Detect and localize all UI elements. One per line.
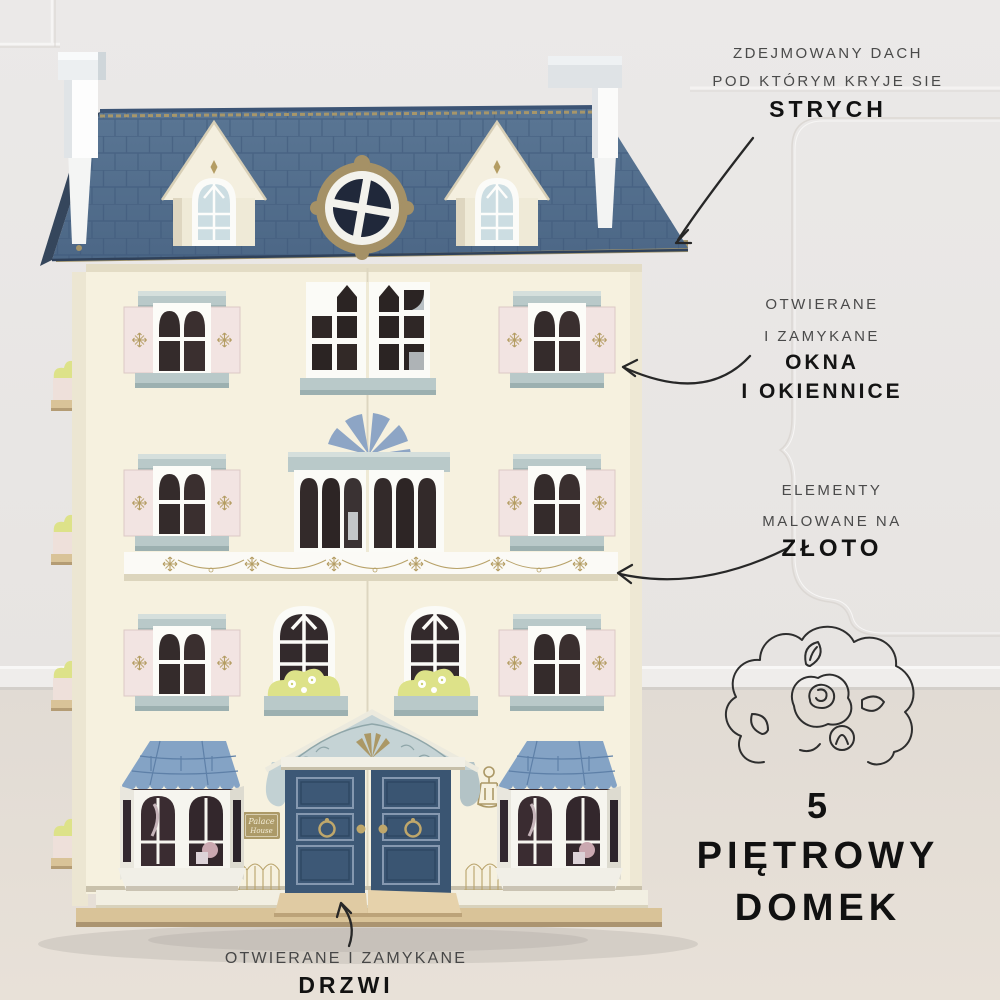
annotation-roof-emphasis: STRYCH: [688, 98, 968, 121]
shuttered-window: [499, 291, 615, 388]
annotation-windows-emphasis2: I OKIENNICE: [692, 381, 952, 402]
shuttered-window: [124, 454, 240, 551]
door-knob: [357, 825, 366, 834]
annotation-floors-line2: DOMEK: [678, 889, 958, 927]
annotation-windows: OTWIERANE I ZAMYKANE OKNA I OKIENNICE: [692, 297, 952, 402]
annotation-windows-line2: I ZAMYKANE: [692, 329, 952, 344]
gothic-window: [300, 282, 436, 395]
shuttered-window: [499, 614, 615, 711]
annotation-windows-emphasis1: OKNA: [692, 352, 952, 373]
annotation-floors-count: 5: [678, 788, 958, 824]
dollhouse: Palace House: [38, 52, 698, 964]
annotation-gold: ELEMENTY MALOWANE NA ZŁOTO: [702, 483, 962, 561]
annotation-gold-line2: MALOWANE NA: [702, 514, 962, 529]
plaque-text-line1: Palace: [247, 817, 275, 826]
shuttered-window: [124, 614, 240, 711]
door-knob: [379, 825, 388, 834]
annotation-door-emphasis: DRZWI: [216, 974, 476, 997]
annotation-door: OTWIERANE I ZAMYKANE DRZWI: [216, 951, 476, 997]
product-infographic: Palace House: [0, 0, 1000, 1000]
bay-window: [118, 741, 246, 891]
annotation-roof-line2: POD KTÓRYM KRYJE SIE: [688, 74, 968, 89]
annotation-roof-line1: ZDEJMOWANY DACH: [688, 46, 968, 61]
bay-window: [495, 741, 623, 891]
annotation-door-line1: OTWIERANE I ZAMYKANE: [216, 951, 476, 967]
gold-frieze: [124, 552, 618, 581]
shuttered-window: [124, 291, 240, 388]
annotation-windows-line1: OTWIERANE: [692, 297, 952, 312]
annotation-roof: ZDEJMOWANY DACH POD KTÓRYM KRYJE SIE STR…: [688, 46, 968, 121]
house-side-wall: [72, 272, 88, 906]
house-name-plaque: Palace House: [243, 812, 280, 839]
annotation-gold-emphasis: ZŁOTO: [702, 537, 962, 561]
plaque-text-line2: House: [249, 827, 273, 835]
center-triple-window: [288, 452, 450, 552]
door-step: [274, 890, 462, 917]
annotation-gold-line1: ELEMENTY: [702, 483, 962, 498]
annotation-floors: 5 PIĘTROWY DOMEK: [678, 788, 958, 927]
shuttered-window: [499, 454, 615, 551]
annotation-floors-line1: PIĘTROWY: [678, 837, 958, 875]
